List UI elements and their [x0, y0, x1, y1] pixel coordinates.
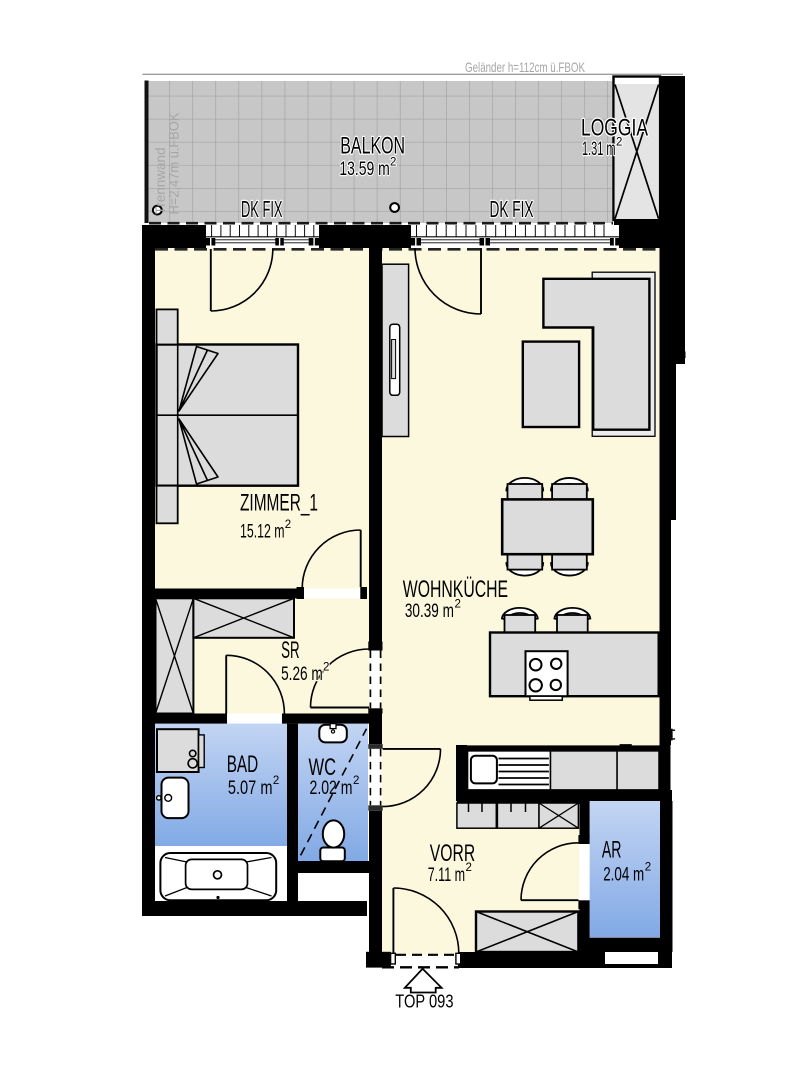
svg-text:DK FIX: DK FIX: [241, 196, 283, 222]
svg-text:30.39 m: 30.39 m: [405, 600, 454, 622]
svg-text:ZIMMER_1: ZIMMER_1: [240, 490, 318, 517]
svg-text:13.59 m: 13.59 m: [339, 158, 389, 180]
svg-text:TOP 093: TOP 093: [395, 991, 453, 1012]
svg-text:5.07 m: 5.07 m: [228, 777, 273, 799]
svg-text:DK FIX: DK FIX: [490, 196, 534, 222]
svg-text:2: 2: [285, 519, 291, 531]
svg-text:H=2,47m ü.FBOK: H=2,47m ü.FBOK: [166, 112, 182, 215]
svg-text:2: 2: [390, 157, 396, 169]
svg-text:5.26 m: 5.26 m: [281, 663, 323, 685]
svg-text:2: 2: [616, 137, 622, 149]
svg-text:2: 2: [273, 775, 279, 787]
svg-text:2: 2: [645, 862, 651, 874]
svg-text:BAD: BAD: [227, 751, 259, 778]
svg-text:BALKON: BALKON: [340, 132, 405, 159]
svg-text:2.04 m: 2.04 m: [603, 864, 644, 886]
svg-text:2.02 m: 2.02 m: [310, 777, 353, 799]
svg-text:SR: SR: [281, 637, 300, 664]
svg-text:2: 2: [323, 662, 329, 674]
svg-text:2: 2: [455, 599, 461, 611]
svg-text:2: 2: [353, 775, 359, 787]
svg-text:1.31 m: 1.31 m: [582, 138, 616, 160]
svg-text:7.11 m: 7.11 m: [428, 864, 465, 886]
svg-text:15.12 m: 15.12 m: [240, 520, 285, 542]
svg-text:Geländer h=112cm ü.FBOK: Geländer h=112cm ü.FBOK: [465, 59, 585, 75]
svg-text:AR: AR: [602, 836, 622, 863]
svg-text:2: 2: [466, 862, 472, 874]
